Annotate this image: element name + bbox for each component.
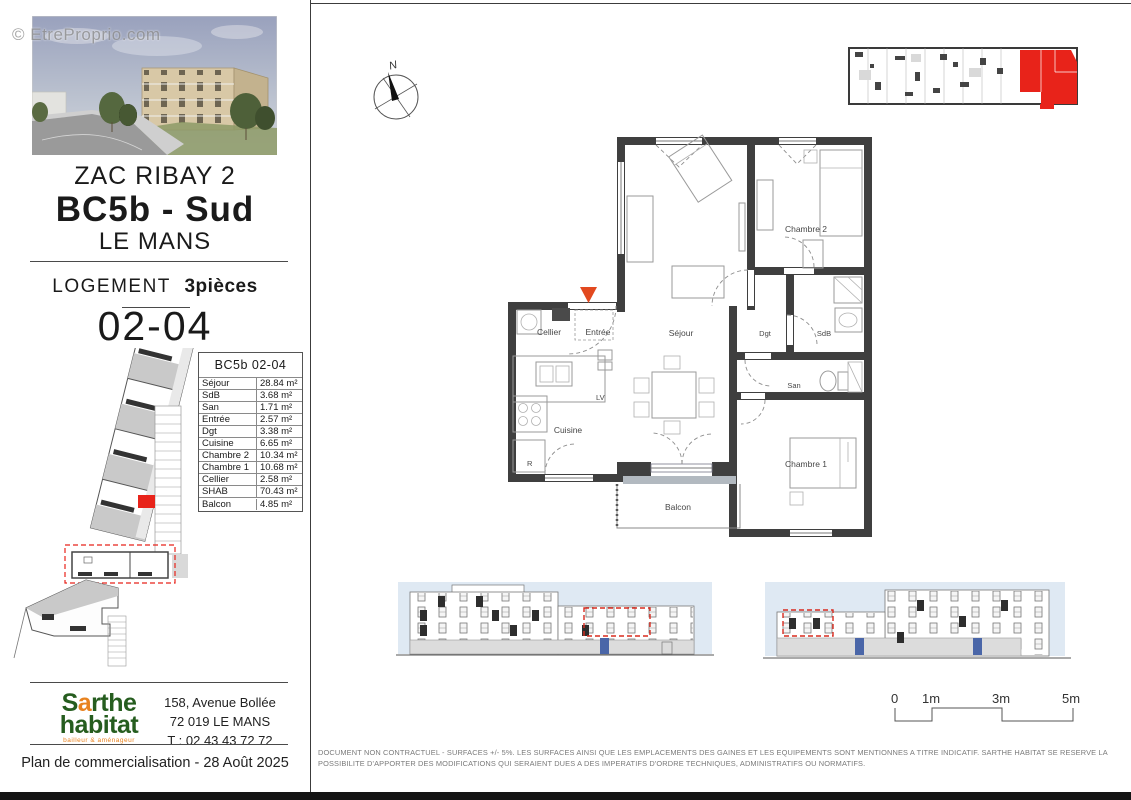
project-zone: ZAC RIBAY 2 bbox=[0, 162, 310, 190]
dining-table bbox=[634, 356, 714, 434]
table-row: Chambre 110.68 m² bbox=[199, 461, 302, 473]
sarthe-habitat-logo: Sarthe habitat bailleur & aménageur bbox=[44, 692, 154, 744]
project-title-block: ZAC RIBAY 2 BC5b - Sud LE MANS bbox=[0, 162, 310, 256]
address-line: 72 019 LE MANS bbox=[155, 713, 285, 732]
table-row: Cellier2.58 m² bbox=[199, 473, 302, 485]
label-lv: LV bbox=[596, 393, 605, 402]
unit-number: 02-04 bbox=[0, 303, 310, 350]
main-top-border bbox=[310, 3, 1131, 4]
floor-plan: Cellier Entrée Séjour Chambre 2 Dgt SdB … bbox=[480, 125, 890, 585]
scale-1m: 1m bbox=[922, 691, 940, 706]
logement-label: LOGEMENT bbox=[52, 276, 171, 297]
site-plan-level bbox=[52, 348, 208, 586]
address-block: 158, Avenue Bollée 72 019 LE MANS T : 02… bbox=[155, 694, 285, 751]
sidebar-main-divider bbox=[310, 0, 311, 793]
entree-closet bbox=[575, 310, 613, 370]
coffee-table bbox=[672, 266, 724, 298]
compass-icon: N bbox=[365, 55, 427, 127]
watermark: © EtreProprio.com bbox=[12, 25, 161, 45]
parking-strip bbox=[155, 406, 181, 554]
address-line: 158, Avenue Bollée bbox=[155, 694, 285, 713]
surface-table-title: BC5b 02-04 bbox=[199, 353, 302, 377]
room-label-chambre1: Chambre 1 bbox=[785, 459, 827, 469]
logement-type: 3pièces bbox=[184, 276, 257, 297]
compass-north-label: N bbox=[388, 59, 399, 73]
scale-5m: 5m bbox=[1062, 691, 1080, 706]
scale-0: 0 bbox=[891, 691, 898, 706]
room-label-dgt: Dgt bbox=[759, 329, 772, 338]
logo-word-2: habitat bbox=[44, 714, 154, 736]
table-row: Entrée2.57 m² bbox=[199, 413, 302, 425]
furniture bbox=[513, 135, 862, 505]
plan-date: Plan de commercialisation - 28 Août 2025 bbox=[0, 755, 310, 771]
disclaimer-text: DOCUMENT NON CONTRACTUEL - SURFACES +/- … bbox=[318, 747, 1116, 769]
san-fixtures bbox=[820, 362, 862, 392]
room-label-cuisine: Cuisine bbox=[554, 425, 583, 435]
footer-divider-top bbox=[30, 682, 288, 683]
tv-unit bbox=[739, 203, 745, 251]
address-line: T : 02 43 43 72 72 bbox=[155, 732, 285, 751]
table-row: SdB3.68 m² bbox=[199, 389, 302, 401]
plan-commercialisation-page: © EtreProprio.com bbox=[0, 0, 1131, 800]
room-label-sdb: SdB bbox=[817, 329, 831, 338]
surface-table: BC5b 02-04 Séjour28.84 m² SdB3.68 m² San… bbox=[198, 352, 303, 512]
table-row: SHAB70.43 m² bbox=[199, 485, 302, 497]
scale-bar: 0 1m 3m 5m bbox=[885, 690, 1085, 730]
table-row: Cuisine6.65 m² bbox=[199, 437, 302, 449]
floor-overview-miniplan bbox=[845, 42, 1081, 112]
sdb-fixtures bbox=[834, 277, 862, 332]
room-label-sejour: Séjour bbox=[669, 328, 694, 338]
label-r: R bbox=[527, 459, 533, 468]
room-label-cellier: Cellier bbox=[537, 327, 561, 337]
divider-line bbox=[30, 261, 288, 262]
site-footprint-plan bbox=[12, 572, 142, 672]
bed-chambre1 bbox=[790, 438, 856, 505]
table-row: Dgt3.38 m² bbox=[199, 425, 302, 437]
entrance-arrow bbox=[580, 287, 597, 303]
bed-chambre2 bbox=[757, 150, 862, 268]
footer-divider-bottom bbox=[30, 744, 288, 745]
room-label-balcon: Balcon bbox=[665, 502, 691, 512]
table-row: Séjour28.84 m² bbox=[199, 377, 302, 389]
sideboard bbox=[627, 196, 653, 262]
elevation-front bbox=[392, 572, 718, 672]
room-label-chambre2: Chambre 2 bbox=[785, 224, 827, 234]
room-label-san: San bbox=[787, 381, 800, 390]
project-city: LE MANS bbox=[0, 229, 310, 256]
page-bottom-strip bbox=[0, 792, 1131, 800]
scale-3m: 3m bbox=[992, 691, 1010, 706]
table-row-balcony: Balcon4.85 m² bbox=[199, 497, 302, 511]
project-building: BC5b - Sud bbox=[0, 190, 310, 229]
table-row: San1.71 m² bbox=[199, 401, 302, 413]
table-row: Chambre 210.34 m² bbox=[199, 449, 302, 461]
highlighted-parking-spot bbox=[138, 495, 155, 508]
elevation-rear bbox=[757, 572, 1077, 672]
armchair bbox=[669, 135, 732, 202]
room-label-entree: Entrée bbox=[585, 327, 610, 337]
logement-line: LOGEMENT 3pièces bbox=[0, 276, 310, 298]
kitchen-counter bbox=[513, 356, 605, 472]
